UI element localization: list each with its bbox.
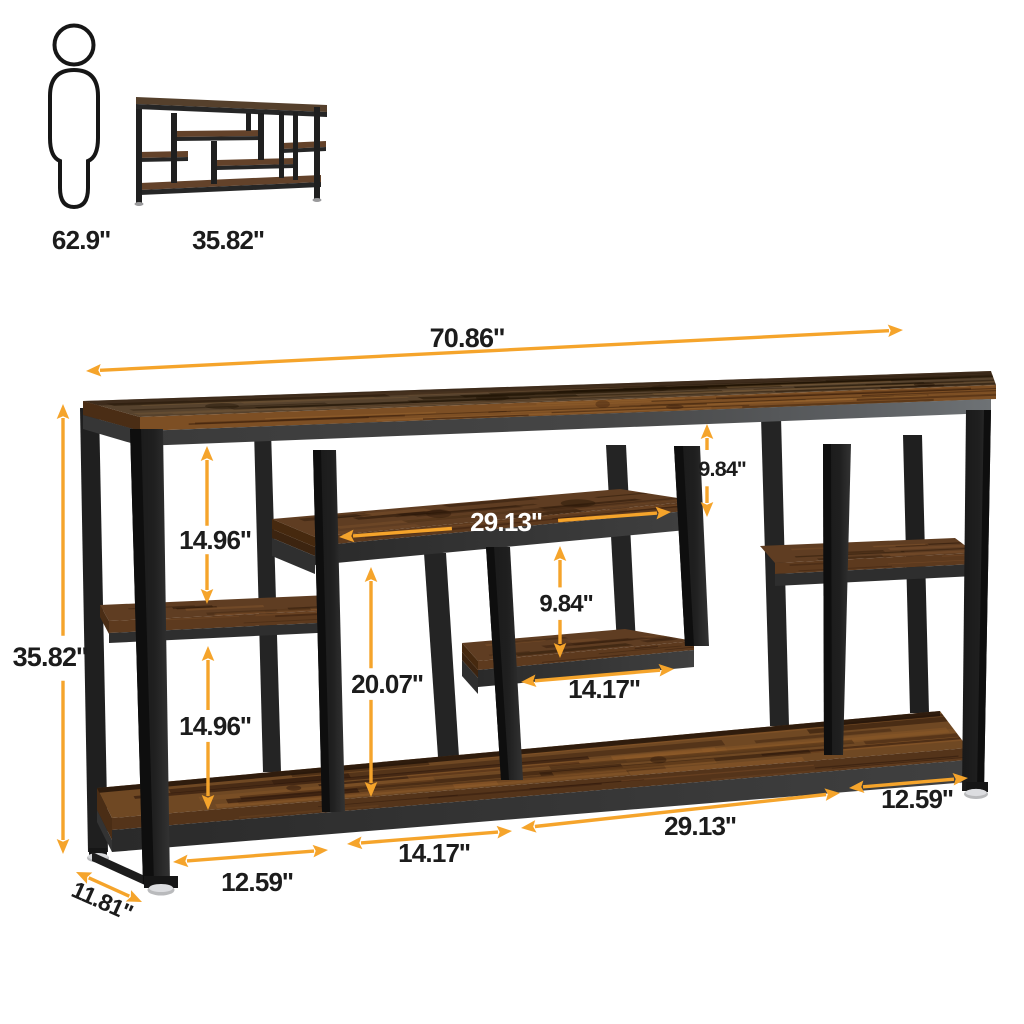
svg-text:29.13'': 29.13''	[664, 811, 736, 841]
svg-text:14.17'': 14.17''	[568, 674, 640, 704]
svg-text:14.17'': 14.17''	[398, 838, 470, 868]
svg-text:29.13'': 29.13''	[470, 507, 542, 537]
svg-text:12.59'': 12.59''	[221, 867, 293, 897]
svg-text:14.96'': 14.96''	[179, 525, 251, 555]
svg-text:12.59'': 12.59''	[881, 784, 953, 814]
svg-text:9.84'': 9.84''	[539, 591, 592, 618]
svg-text:14.96'': 14.96''	[179, 711, 251, 741]
svg-text:9.84'': 9.84''	[698, 457, 745, 481]
svg-text:35.82'': 35.82''	[192, 225, 264, 255]
svg-text:70.86'': 70.86''	[430, 323, 505, 353]
svg-text:20.07'': 20.07''	[351, 669, 423, 699]
svg-text:35.82'': 35.82''	[13, 642, 88, 672]
svg-text:62.9'': 62.9''	[52, 225, 110, 255]
